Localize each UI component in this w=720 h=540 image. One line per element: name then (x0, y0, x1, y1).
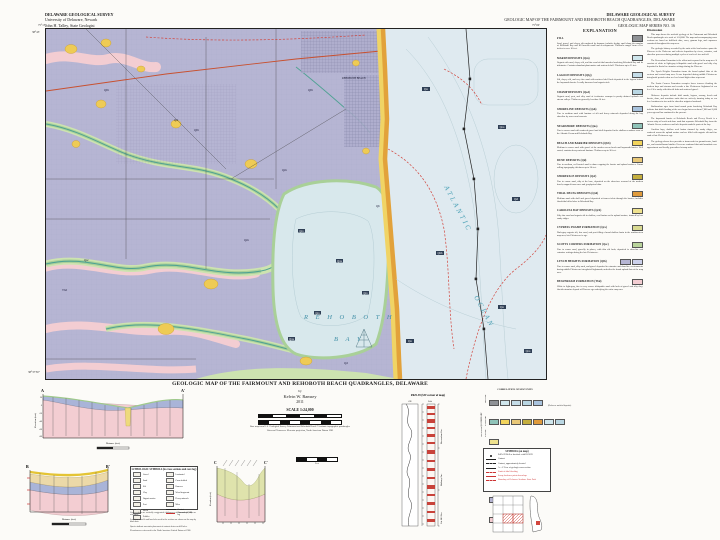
legend-entry: SHORELINE DEPOSITS (Qsh) Fine to medium … (557, 106, 643, 119)
svg-text:Qd: Qd (344, 361, 348, 365)
approx-contact-symbol (486, 463, 496, 464)
svg-text:Qm: Qm (500, 305, 504, 309)
legend-description: Fine to coarse sand, gravelly in places,… (557, 249, 643, 255)
unit-color-chip (632, 242, 643, 249)
corner-latitude-top: 38°45' (32, 30, 40, 34)
legend-entry: CAROLINA BAY DEPOSITS (Qcb) Silty fine s… (557, 208, 643, 221)
discussion-paragraph: The Scotts Corners Formation occupies lo… (647, 83, 717, 92)
svg-text:Qm: Qm (424, 87, 428, 91)
section-a-scalebar-fill (97, 447, 113, 449)
formation-label-bethany: Bethany Fm. (440, 473, 443, 486)
svg-text:Qns: Qns (337, 259, 342, 263)
correlation-row-late-pleistocene (489, 412, 571, 430)
lithologic-symbols-title: LITHOLOGIC SYMBOLS (in cross sections an… (131, 468, 197, 471)
scale-bar-miles (258, 414, 342, 419)
legend-heading: CYPRESS SWAMP FORMATION (Qcs) (557, 226, 607, 229)
well-dot-symbol (490, 455, 492, 457)
legend-description: Dark-gray organic silt, fine sand, and p… (557, 232, 643, 238)
section-scale-bar: Feet (295, 455, 339, 465)
heavy-minerals-symbol (166, 496, 174, 501)
discussion-paragraph: Holocene deposits include tidal marsh, l… (647, 95, 717, 104)
unit-color-chip (632, 208, 643, 215)
legend-description: Fine to medium, well-sorted sand in dune… (557, 164, 643, 170)
unit-color-chip (632, 72, 643, 79)
park-boundary-symbol (486, 480, 496, 481)
svg-text:Qm: Qm (408, 339, 412, 343)
lithologic-symbols-box: LITHOLOGIC SYMBOLS (in cross sections an… (130, 466, 198, 510)
rehoboth-bay-label-2: B A Y (334, 336, 364, 343)
svg-text:Qsc: Qsc (84, 258, 90, 262)
legend-description: Organic mud, peat, and silty sand of fre… (557, 96, 643, 102)
svg-text:-80: -80 (39, 436, 43, 438)
core-log-panel: Pd25-39 (SW corner of map) GR Lith Beave… (396, 390, 460, 534)
legend-description: Silt, clayey silt, and very fine sand wi… (557, 79, 643, 85)
legend-entry: NEARSHORE DEPOSITS (Qns) Fine to coarse … (557, 123, 643, 136)
tidal-limit-symbol (486, 472, 496, 473)
section-a-start-label: A (41, 388, 44, 393)
legend-heading: SHORELINE DEPOSITS (Qsh) (557, 108, 596, 111)
legend-heading: NEARSHORE DEPOSITS (Qns) (557, 125, 597, 128)
burrows-symbol (166, 484, 174, 489)
unit-color-chip (632, 279, 643, 286)
depth-ticks (422, 404, 424, 526)
legend-heading: SCOTTS CORNERS FORMATION (Qsc) (557, 243, 609, 246)
svg-text:20: 20 (40, 397, 43, 399)
legend-entry: BEACH AND BARRIER DEPOSITS (Qbb) Medium … (557, 140, 643, 153)
legend-heading: MARSH DEPOSITS (Qm) (557, 57, 590, 60)
header-right: DELAWARE GEOLOGICAL SURVEY GEOLOGIC MAP … (504, 12, 675, 28)
svg-text:Qlh: Qlh (104, 88, 109, 92)
town-label: REHOBOTH BEACH (342, 77, 366, 80)
formation-label-beaverdam: Beaverdam Fm. (440, 428, 443, 444)
discussion-paragraph: Radiocarbon ages from basal marsh peats … (647, 106, 717, 115)
map-title: GEOLOGIC MAP OF THE FAIRMOUNT AND REHOBO… (150, 381, 450, 387)
legend-heading: LYNCH HEIGHTS FORMATION (Qlh) (557, 260, 607, 263)
svg-text:Qm: Qm (244, 238, 249, 242)
section-a-end-label: A' (181, 388, 185, 393)
discussion-column: Discussion This map shows the surficial … (647, 28, 717, 532)
unit-color-chip (632, 140, 643, 147)
svg-text:Tbd: Tbd (62, 288, 68, 292)
discussion-title: Discussion (647, 28, 717, 32)
header-left: DELAWARE GEOLOGICAL SURVEY University of… (45, 12, 114, 28)
gamma-curve-label: GR (408, 401, 412, 403)
unit-color-chip (620, 259, 631, 266)
unit-color-chip (632, 225, 643, 232)
section-a-xlabel: Distance (feet) (106, 442, 120, 445)
section-footnotes: Cross sections are vertically exaggerate… (130, 510, 196, 533)
gamma-curve-box (402, 404, 418, 526)
legend-entry: BEAVERDAM FORMATION (Tbd) White to light… (557, 279, 643, 292)
legend-entry: TIDAL DELTA DEPOSITS (Qtd) Medium sand w… (557, 191, 643, 204)
formation-label-cathill: Cat Hill Fm. (440, 512, 443, 524)
svg-text:-20: -20 (39, 413, 43, 415)
geologic-map-canvas: QmQns QsfQbb QmQns QmQm QnsQm QmQns Qlh … (46, 29, 546, 379)
quad-index-grid (493, 496, 523, 532)
discussion-paragraph: The Beaverdam Formation is the oldest un… (647, 60, 717, 69)
svg-text:-60: -60 (39, 429, 43, 431)
clay-symbol (133, 490, 141, 495)
svg-text:Qb: Qb (376, 204, 380, 208)
svg-text:Qbb: Qbb (438, 251, 443, 255)
correlation-era-brackets: QUATERNARY NEOGENE (481, 393, 483, 437)
scarp-symbol (486, 476, 496, 477)
gravel-symbol (133, 472, 141, 477)
corner-coordinate-tr: 75°00' (532, 23, 540, 27)
cross-section-b: B B' Distance (feet) (22, 460, 114, 532)
geologic-map[interactable]: QmQns QsfQbb QmQns QmQm QnsQm QmQns Qlh … (45, 28, 547, 380)
discussion-paragraph: The Lynch Heights Formation forms the br… (647, 71, 717, 80)
mica-symbol (166, 502, 174, 507)
discussion-paragraph: The geology shown here provides a framew… (647, 141, 717, 150)
unit-color-chip (632, 89, 643, 96)
legend-entry: DUNE DEPOSITS (Qd) Fine to medium, well-… (557, 157, 643, 170)
svg-text:Qsf: Qsf (514, 197, 518, 201)
correlation-title: CORRELATION OF MAP UNITS (481, 388, 549, 391)
unit-color-chip (632, 106, 643, 113)
section-a-channel-fill (125, 408, 131, 426)
urban-grid-rehoboth (344, 75, 382, 147)
sand-symbol (133, 478, 141, 483)
legend-description: White to light-gray, fine to very coarse… (557, 286, 643, 292)
svg-text:Qns: Qns (289, 337, 294, 341)
core-log-title: Pd25-39 (SW corner of map) (411, 394, 445, 397)
svg-text:Qm: Qm (299, 229, 303, 233)
legend-heading: SWAMP DEPOSITS (Qsd) (557, 91, 590, 94)
svg-text:0: 0 (41, 405, 43, 407)
legend-heading: BEACH AND BARRIER DEPOSITS (Qbb) (557, 142, 611, 145)
crossbed-symbol (166, 478, 174, 483)
organic-symbol (133, 496, 141, 501)
legend-heading: DUNE DEPOSITS (Qd) (557, 159, 586, 162)
legend-heading: SHOREFACE DEPOSITS (Qsf) (557, 175, 596, 178)
legend-heading: CAROLINA BAY DEPOSITS (Qcb) (557, 209, 601, 212)
legend-entry: CYPRESS SWAMP FORMATION (Qcs) Dark-gray … (557, 225, 643, 238)
legend-heading: BEAVERDAM FORMATION (Tbd) (557, 280, 602, 283)
legend-entry: SCOTTS CORNERS FORMATION (Qsc) Fine to c… (557, 242, 643, 255)
cross-section-c: C C' Elevation (feet) (209, 454, 271, 534)
lith-column-label: Lith (428, 401, 433, 403)
legend-description: Medium to coarse sand with gravel of the… (557, 147, 643, 153)
section-b-red-marks (27, 478, 30, 504)
legend-description: Fine to coarse sand, silty sand, and gra… (557, 266, 643, 275)
cross-section-a: A A' 200 -20-40 -60-80 Elevation (feet) … (33, 386, 191, 454)
pink-unit-band-bottom (46, 366, 196, 370)
peat-symbol (133, 502, 141, 507)
svg-text:Qns: Qns (500, 125, 505, 129)
legend-entry: FILL Sand, gravel, and clayey silt empla… (557, 35, 643, 51)
sheet-title-small: GEOLOGIC MAP OF THE FAIRMOUNT AND REHOBO… (504, 17, 675, 22)
svg-text:Qd: Qd (174, 118, 178, 122)
section-c-end-label: C' (264, 461, 268, 465)
legend-description: Organic-rich mud, clayey silt, and fine … (557, 62, 643, 68)
section-c-start-label: C (214, 461, 217, 465)
svg-text:-40: -40 (39, 421, 43, 423)
discussion-paragraph: The baymouth barrier at Rehoboth Beach a… (647, 118, 717, 127)
unit-color-chip (632, 55, 643, 62)
scale-bar-feet (258, 420, 342, 425)
contact-symbol (486, 459, 496, 460)
unit-color-chip (632, 157, 643, 164)
legend-description: Fine to coarse sand, silty at the base, … (557, 181, 643, 187)
legend-description: Sand, gravel, and clayey silt emplaced b… (557, 43, 643, 52)
svg-text:Qlh: Qlh (308, 88, 313, 92)
legend-entry: LYNCH HEIGHTS FORMATION (Qlh) Fine to co… (557, 259, 643, 275)
section-c-cypress-swamp (217, 468, 265, 500)
corner-coordinate-tl: 75°15' (38, 23, 46, 27)
section-c-x-ticks (223, 522, 263, 524)
svg-text:Qm: Qm (282, 168, 287, 172)
laminated-symbol (166, 472, 174, 477)
section-b-start-label: B (26, 464, 29, 469)
section-line-symbol (486, 468, 496, 469)
legend-entry: LAGOON DEPOSITS (Qlg) Silt, clayey silt,… (557, 72, 643, 85)
section-a-ylabel: Elevation (feet) (34, 413, 37, 428)
explanation-title: EXPLANATION (557, 28, 643, 33)
formation-brackets (438, 404, 440, 526)
legend-description: Medium sand with shell and gravel deposi… (557, 198, 643, 204)
section-a-y-ticks: 200 -20-40 -60-80 (39, 397, 43, 438)
legend-description: Silty fine sand and organic silt in shal… (557, 215, 643, 221)
correlation-row-carolina-bay (489, 432, 571, 450)
section-b-xlabel: Distance (feet) (62, 518, 76, 521)
symbols-title: SYMBOLS (on map) (484, 450, 550, 453)
rehoboth-bay-label: R E H O B O T H (303, 314, 395, 321)
map-symbols-box: SYMBOLS (on map) Pd25-39 Well or borehol… (483, 448, 551, 492)
legend-description: Fine to medium sand with laminae of silt… (557, 113, 643, 119)
unit-color-chip (632, 259, 643, 266)
section-b-scalebar-fill (52, 523, 69, 525)
svg-text:Qm: Qm (363, 291, 367, 295)
map-area-marker (536, 521, 540, 525)
corner-latitude-bottom: 38°37'30" (28, 370, 40, 374)
svg-text:Qlh: Qlh (194, 128, 199, 132)
map-sheet: { "header_left": { "line1": "DELAWARE GE… (0, 0, 720, 540)
legend-description: Fine to coarse sand with scattered grave… (557, 130, 643, 136)
legend-entry: SWAMP DEPOSITS (Qsd) Organic mud, peat, … (557, 89, 643, 102)
section-c-well-ticks (223, 460, 257, 466)
legend-heading: LAGOON DEPOSITS (Qlg) (557, 74, 592, 77)
section-b-dune-cap (30, 470, 108, 475)
unit-color-chip (632, 191, 643, 198)
section-c-ylabel: Elevation (feet) (209, 492, 212, 506)
rehoboth-bay-water (273, 181, 389, 358)
legend-heading: FILL (557, 37, 564, 40)
discussion-paragraph: The geologic history recorded by the uni… (647, 48, 717, 57)
correlation-epoch-brackets: Holocene Pleistocene Pliocene (485, 393, 487, 437)
silt-symbol (133, 484, 141, 489)
delaware-outline (530, 496, 542, 532)
legend-entry: SHOREFACE DEPOSITS (Qsf) Fine to coarse … (557, 174, 643, 187)
legend-heading: TIDAL DELTA DEPOSITS (Qtd) (557, 192, 598, 195)
location-index-map (491, 494, 549, 534)
correlation-row-holocene: (Holocene surficial deposits) (489, 393, 571, 411)
unit-color-chip (632, 35, 643, 42)
discussion-paragraph: This map shows the surficial geology of … (647, 34, 717, 46)
discussion-paragraph: Carolina bays, shallow oval basins rimme… (647, 129, 717, 138)
unit-color-chip (632, 123, 643, 130)
svg-text:Qns: Qns (526, 349, 531, 353)
unit-color-chip (632, 174, 643, 181)
wood-symbol (166, 490, 174, 495)
legend-entry: MARSH DEPOSITS (Qm) Organic-rich mud, cl… (557, 55, 643, 68)
